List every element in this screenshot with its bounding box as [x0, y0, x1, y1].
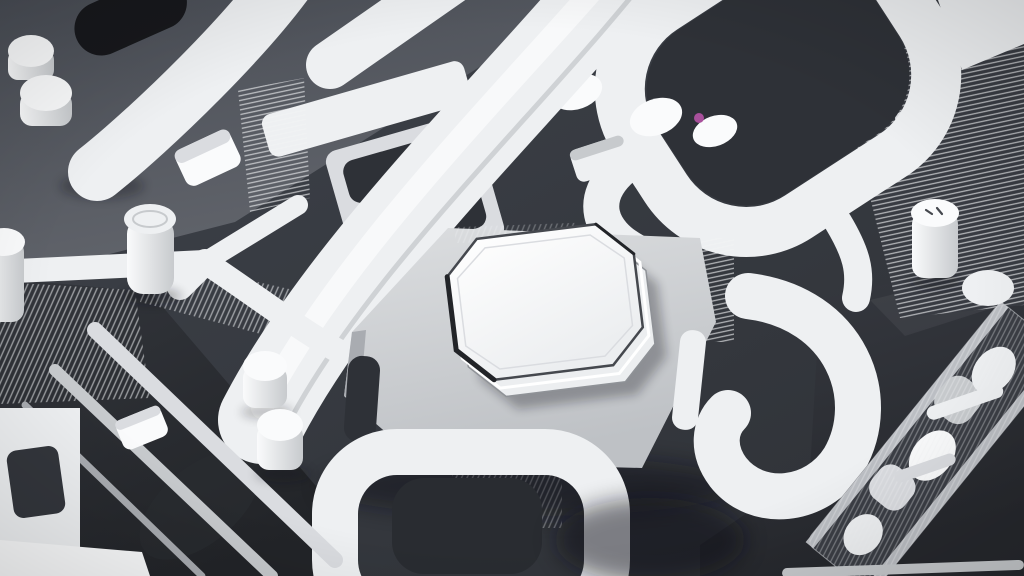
circuit-board-render [0, 0, 1024, 576]
vignette-overlay [0, 0, 1024, 576]
rendered-image: Monochrome 3D render of an abstract prin… [0, 0, 1024, 576]
screenshot-canvas: Monochrome 3D render of an abstract prin… [0, 0, 1024, 576]
